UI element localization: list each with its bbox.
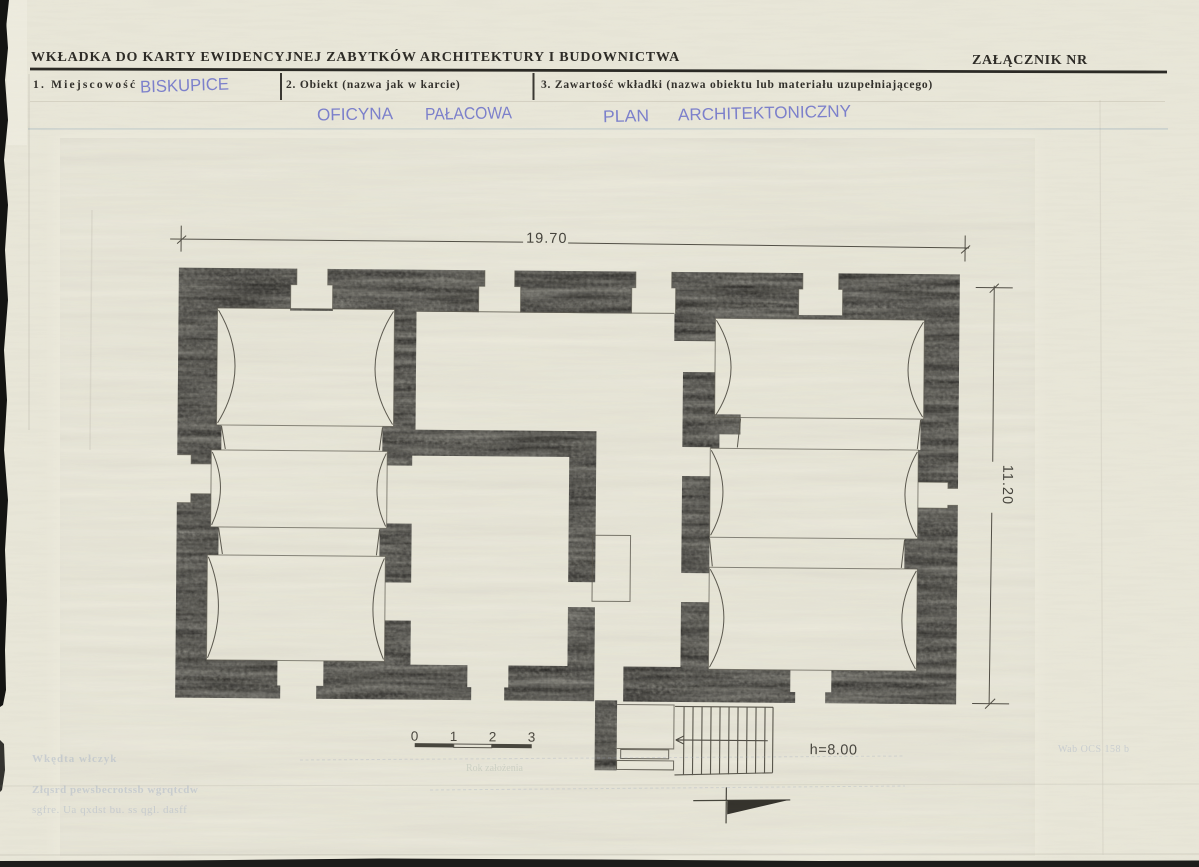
svg-text:WKŁADKA DO KARTY EWIDENCYJNEJ: WKŁADKA DO KARTY EWIDENCYJNEJ ZABYTKÓW A… <box>31 48 680 65</box>
svg-text:PLAN: PLAN <box>603 106 649 126</box>
svg-text:sgfre. Ua qxdst bu. ss qgl. da: sgfre. Ua qxdst bu. ss qgl. dasff <box>32 804 187 816</box>
svg-text:Rok założenia: Rok założenia <box>466 763 523 774</box>
svg-text:ARCHITEKTONICZNY: ARCHITEKTONICZNY <box>678 102 851 125</box>
svg-text:OFICYNA: OFICYNA <box>317 104 394 124</box>
svg-text:2. Obiekt (nazwa jak w karcie): 2. Obiekt (nazwa jak w karcie) <box>286 79 461 91</box>
svg-text:PAŁACOWA: PAŁACOWA <box>425 103 513 124</box>
svg-text:Wkędta włczyk: Wkędta włczyk <box>32 753 117 765</box>
svg-text:ZAŁĄCZNIK NR: ZAŁĄCZNIK NR <box>972 53 1088 68</box>
svg-text:Wab OCS 158 b: Wab OCS 158 b <box>1058 744 1130 755</box>
svg-text:3. Zawartość wkładki (nazwa ob: 3. Zawartość wkładki (nazwa obiektu lub … <box>541 79 933 91</box>
svg-text:BISKUPICE: BISKUPICE <box>140 74 230 96</box>
svg-text:1. Miejscowość: 1. Miejscowość <box>33 79 137 91</box>
